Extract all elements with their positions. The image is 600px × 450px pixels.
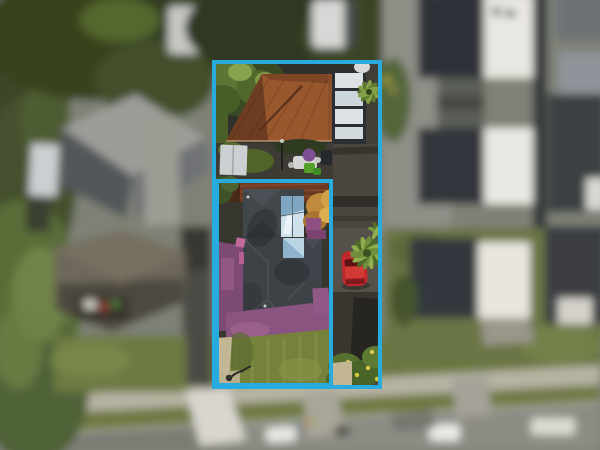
aerial-photo [0, 0, 600, 450]
white-van-top [312, 0, 356, 48]
driveway-crossing-right [452, 375, 492, 418]
light-driveway-topleft [143, 116, 180, 226]
white-shed-left [29, 143, 60, 196]
rear-yard [213, 139, 334, 181]
white-car-3 [531, 418, 575, 435]
white-car-1 [266, 426, 297, 443]
driveway-shadow [182, 228, 210, 270]
sharp-property-area [203, 53, 388, 390]
white-shed [219, 145, 247, 176]
bbq [321, 150, 332, 165]
aerial-photo-stage [0, 0, 600, 450]
dark-object-road [334, 426, 350, 436]
purple-umbrella [303, 149, 316, 162]
front-lawn [226, 329, 331, 386]
carport-pergola-panels [332, 70, 366, 144]
glass-skylight-section [281, 196, 305, 258]
